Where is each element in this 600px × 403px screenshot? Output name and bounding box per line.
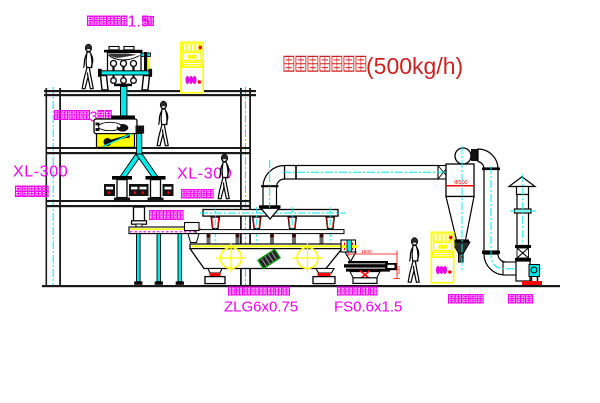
svg-text:540: 540 [396,266,402,274]
svg-text:Φ500: Φ500 [454,180,468,186]
svg-text:XL-300: XL-300 [13,164,68,181]
svg-text:(500kg/h): (500kg/h) [366,53,463,79]
svg-text:FS0.6x1.5: FS0.6x1.5 [334,299,402,316]
svg-text:1500: 1500 [361,249,372,255]
svg-text:ZLG6x0.75: ZLG6x0.75 [224,299,298,316]
